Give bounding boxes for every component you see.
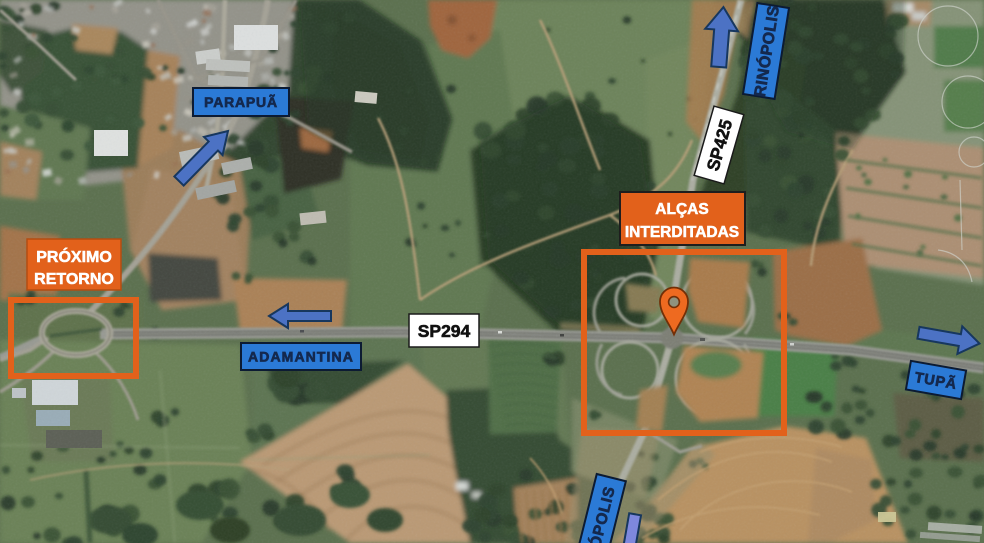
svg-text:PARAPUÃ: PARAPUÃ (204, 93, 278, 110)
svg-text:ALÇAS: ALÇAS (655, 201, 708, 218)
svg-text:INTERDITADAS: INTERDITADAS (625, 224, 739, 241)
svg-text:PRÓXIMO: PRÓXIMO (36, 247, 112, 266)
svg-text:SP294: SP294 (418, 321, 471, 341)
svg-text:RETORNO: RETORNO (34, 271, 114, 288)
svg-text:ADAMANTINA: ADAMANTINA (248, 349, 354, 365)
